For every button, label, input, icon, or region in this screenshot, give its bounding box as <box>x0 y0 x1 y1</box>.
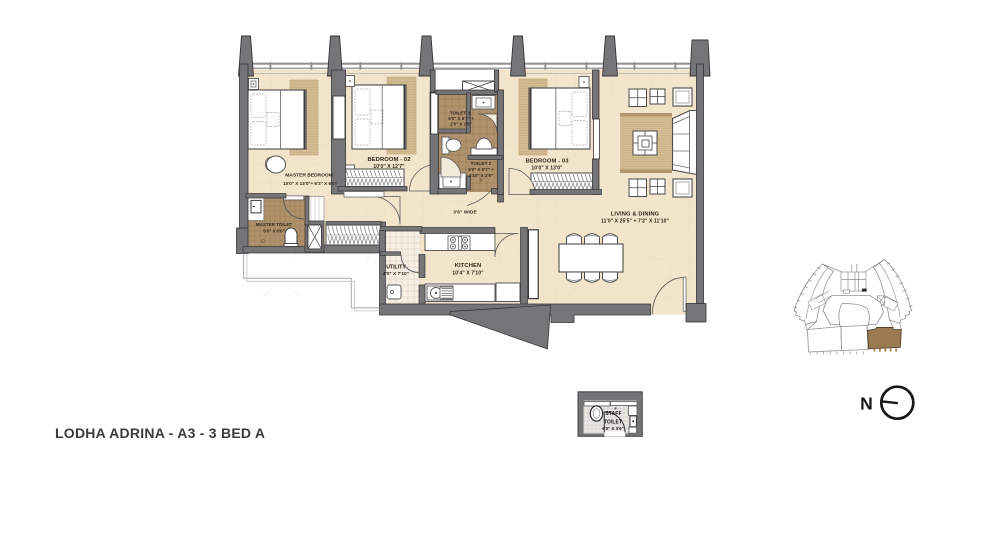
svg-text:5'0" X 6'0": 5'0" X 6'0" <box>263 229 284 234</box>
svg-text:3'6" WIDE: 3'6" WIDE <box>453 210 477 216</box>
svg-text:6'0" X 5'7" +: 6'0" X 5'7" + <box>448 116 474 121</box>
svg-text:2'0" X 2'9": 2'0" X 2'9" <box>450 122 472 127</box>
svg-text:LODHA ADRINA - A3 - 3 BED A: LODHA ADRINA - A3 - 3 BED A <box>55 425 265 441</box>
svg-text:10'0" X 12'7": 10'0" X 12'7" <box>373 164 405 170</box>
svg-text:10'0" X 13'0": 10'0" X 13'0" <box>531 166 563 172</box>
svg-text:4'0" X 7'10": 4'0" X 7'10" <box>383 271 409 276</box>
svg-text:TOILET 3: TOILET 3 <box>450 111 471 116</box>
svg-text:BEDROOM - 03: BEDROOM - 03 <box>525 159 569 165</box>
svg-text:N: N <box>860 394 873 414</box>
svg-text:KITCHEN: KITCHEN <box>455 263 481 269</box>
svg-text:STAFF: STAFF <box>605 411 621 417</box>
svg-text:LIVING & DINING: LIVING & DINING <box>611 212 660 218</box>
svg-text:10'4" X 7'10": 10'4" X 7'10" <box>452 271 484 277</box>
svg-text:BEDROOM - 02: BEDROOM - 02 <box>367 157 410 163</box>
svg-text:TOILET: TOILET <box>604 420 622 426</box>
svg-text:UTILITY: UTILITY <box>386 265 406 271</box>
svg-text:2'10" X 2'9": 2'10" X 2'9" <box>469 173 493 178</box>
svg-text:6'0" X 3'6": 6'0" X 3'6" <box>602 426 624 431</box>
svg-text:TOILET 2: TOILET 2 <box>471 161 492 166</box>
svg-text:10'0" X 13'0"+ 6'3" X 6'0": 10'0" X 13'0"+ 6'3" X 6'0" <box>283 181 337 186</box>
svg-text:6'0" X 5'7" +: 6'0" X 5'7" + <box>468 167 494 172</box>
svg-text:MASTER BEDROOM: MASTER BEDROOM <box>285 173 333 179</box>
svg-text:MASTER TOILET: MASTER TOILET <box>256 222 292 227</box>
svg-text:11'0" X 25'5" + 7'2" X 11'10": 11'0" X 25'5" + 7'2" X 11'10" <box>601 219 669 225</box>
